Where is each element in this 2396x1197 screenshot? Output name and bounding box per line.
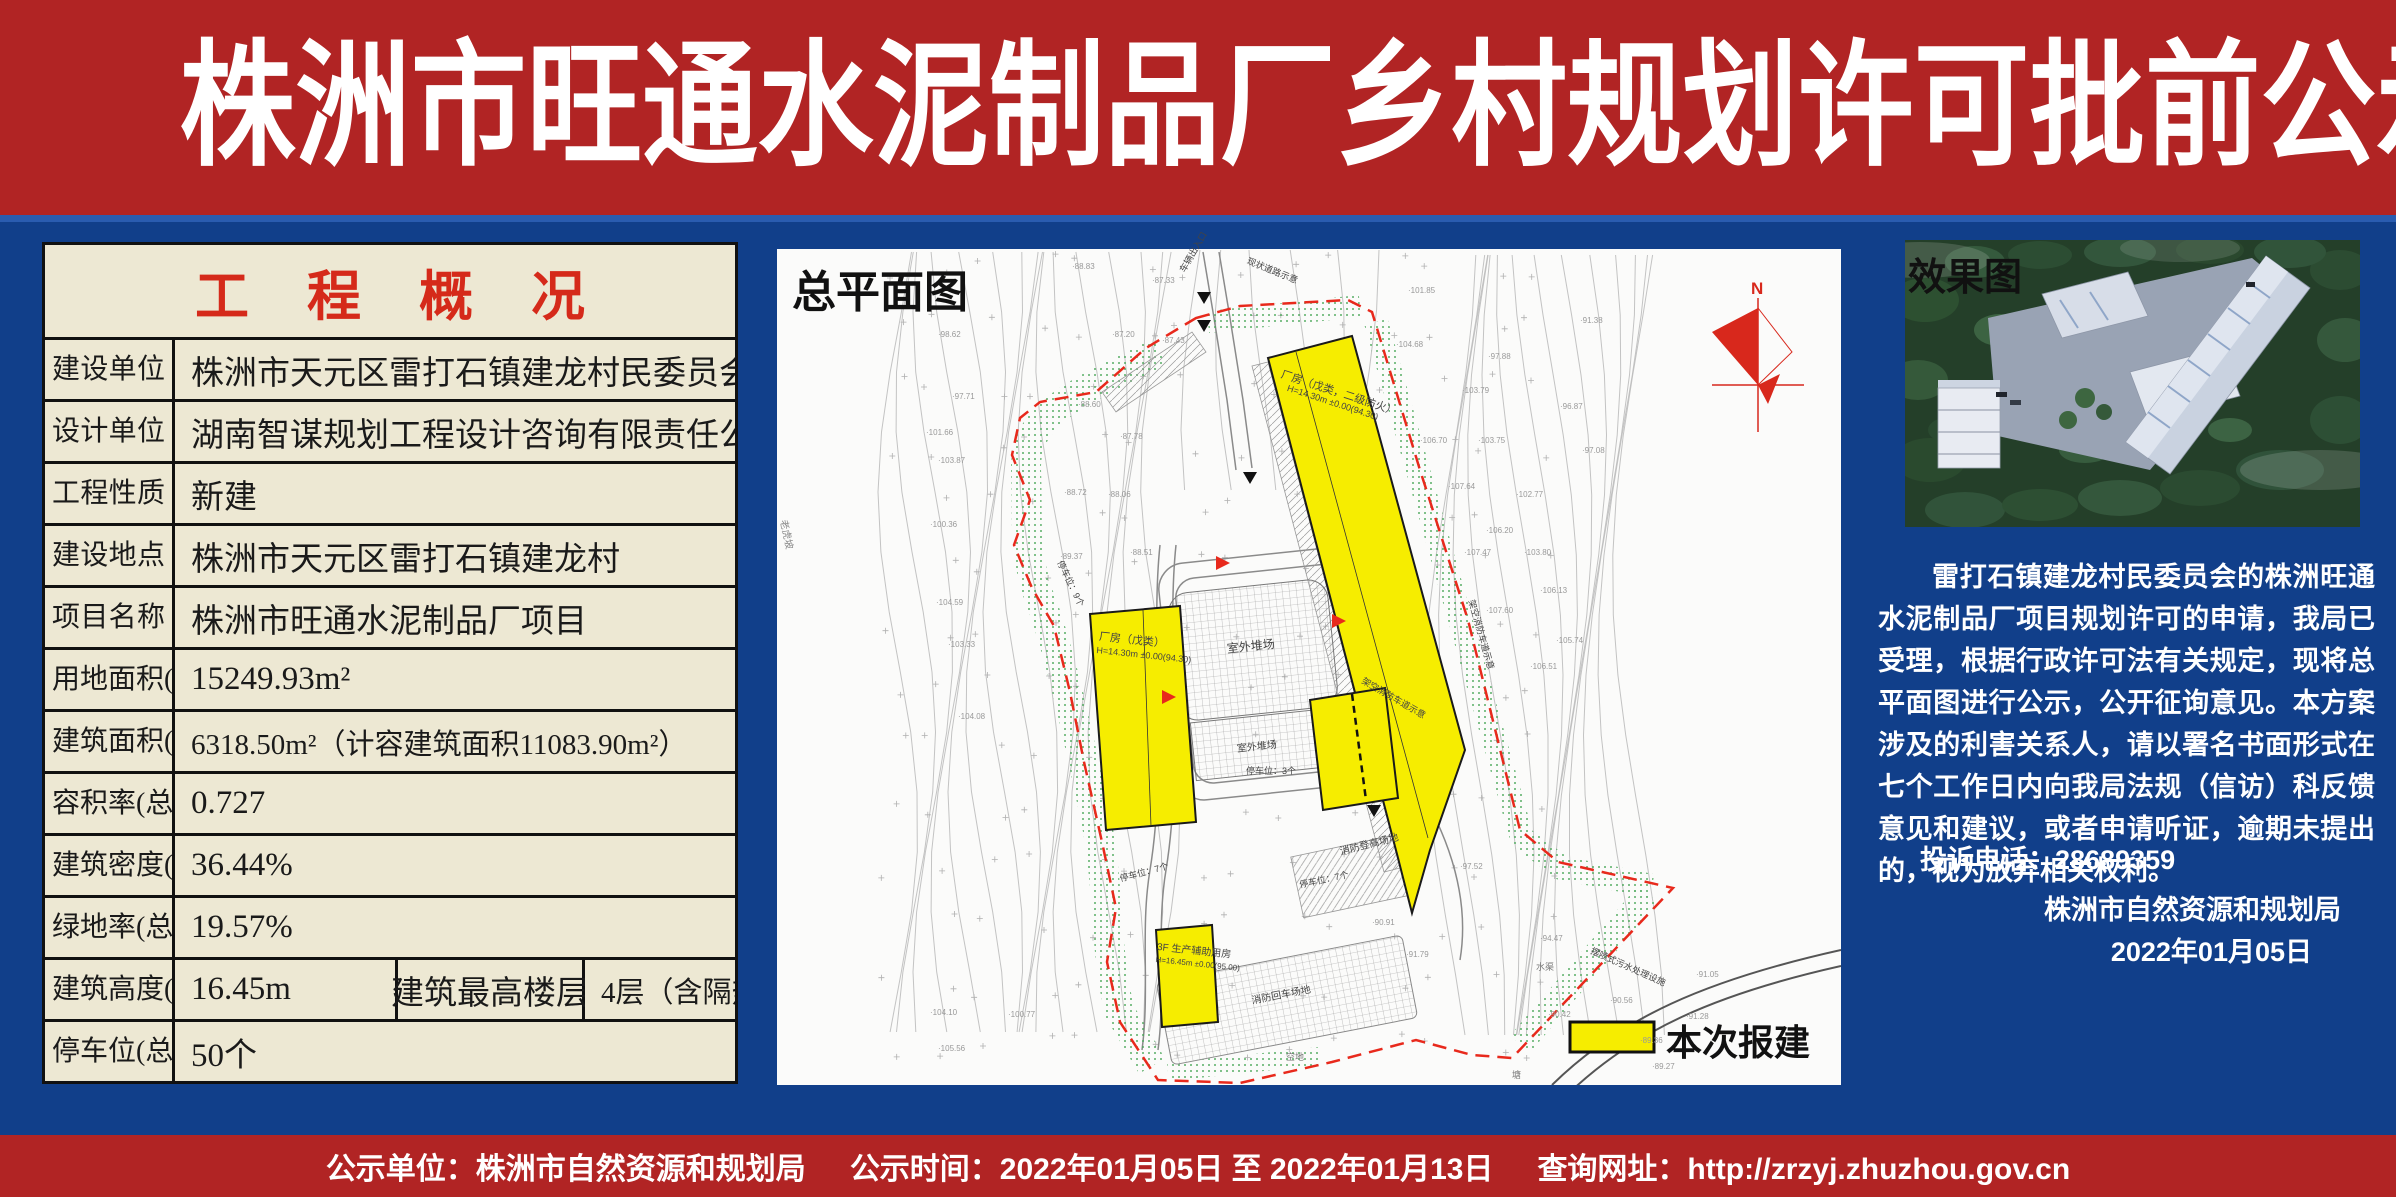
- header-banner: 株洲市旺通水泥制品厂乡村规划许可批前公示: [0, 0, 2396, 215]
- table-row: 停车位(总) 50个: [45, 1022, 735, 1081]
- center-building: [2130, 348, 2240, 420]
- footer-unit: 公示单位：株洲市自然资源和规划局: [326, 1144, 806, 1188]
- row-label: 建设地点: [45, 526, 172, 585]
- row-value: 新建: [175, 464, 735, 523]
- row-label: 建设单位: [45, 340, 172, 399]
- page-title: 株洲市旺通水泥制品厂乡村规划许可批前公示: [180, 0, 2217, 212]
- row-value: 19.57%: [175, 898, 735, 957]
- row-label: 建筑高度(总): [45, 960, 172, 1019]
- site-plan-panel: [777, 249, 1841, 1085]
- table-row: 建筑密度(总) 36.44%: [45, 836, 735, 895]
- table-row: 建设单位 株洲市天元区雷打石镇建龙村民委员会: [45, 340, 735, 399]
- project-overview-table: 工程概况 建设单位 株洲市天元区雷打石镇建龙村民委员会 设计单位 湖南智谋规划工…: [42, 242, 738, 1084]
- skylights: [2060, 282, 2270, 428]
- row-label: 用地面积(总): [45, 650, 172, 709]
- row-value: 株洲市天元区雷打石镇建龙村: [175, 526, 735, 585]
- table-row: 用地面积(总) 15249.93m²: [45, 650, 735, 709]
- table-row: 绿地率(总) 19.57%: [45, 898, 735, 957]
- table-row: 设计单位 湖南智谋规划工程设计咨询有限责任公司: [45, 402, 735, 461]
- table-row: 项目名称 株洲市旺通水泥制品厂项目: [45, 588, 735, 647]
- notice-date: 2022年01月05日: [1878, 930, 2312, 969]
- footer-banner: 公示单位：株洲市自然资源和规划局 公示时间：2022年01月05日 至 2022…: [0, 1135, 2396, 1197]
- row-value: 株洲市天元区雷打石镇建龙村民委员会: [175, 340, 735, 399]
- office-building: [1938, 388, 2000, 468]
- office-roof: [1938, 380, 2000, 394]
- table-row: 建设地点 株洲市天元区雷打石镇建龙村: [45, 526, 735, 585]
- concrete-pad: [1988, 258, 2298, 470]
- complaint-phone: 投诉电话：28689359: [1920, 838, 2375, 877]
- row-value: 株洲市旺通水泥制品厂项目: [175, 588, 735, 647]
- row-label: 工程性质: [45, 464, 172, 523]
- table-row: 工程性质 新建: [45, 464, 735, 523]
- row-label: 项目名称: [45, 588, 172, 647]
- row-value: 0.727: [175, 774, 735, 833]
- table-row: 容积率(总) 0.727: [45, 774, 735, 833]
- agency-name: 株洲市自然资源和规划局: [1878, 888, 2341, 927]
- row-value: 6318.50m²（计容建筑面积11083.90m²）: [175, 712, 735, 771]
- row-label: 绿地率(总): [45, 898, 172, 957]
- render-title: 效果图: [1908, 246, 2022, 301]
- long-building: [2126, 256, 2310, 474]
- row-label: 建筑面积(总): [45, 712, 172, 771]
- legend-label: 本次报建: [1666, 1014, 1810, 1066]
- row-label: 建筑密度(总): [45, 836, 172, 895]
- row-value: 16.45m: [175, 960, 395, 1019]
- table-row: 建筑面积(总) 6318.50m²（计容建筑面积11083.90m²）: [45, 712, 735, 771]
- row-label: 停车位(总): [45, 1022, 172, 1081]
- header-underline: [0, 215, 2396, 222]
- footer-url[interactable]: 查询网址：http://zrzyj.zhuzhou.gov.cn: [1537, 1144, 2070, 1188]
- row-value: 15249.93m²: [175, 650, 735, 709]
- row-value: 36.44%: [175, 836, 735, 895]
- row-label: 设计单位: [45, 402, 172, 461]
- plan-title: 总平面图: [792, 256, 968, 320]
- row-subvalue: 4层（含隔热层）: [585, 960, 735, 1019]
- overview-title: 工程概况: [45, 245, 735, 337]
- mid-building: [2042, 272, 2148, 338]
- footer-time: 公示时间：2022年01月05日 至 2022年01月13日: [850, 1144, 1494, 1188]
- table-row-building-height: 建筑高度(总) 16.45m 建筑最高楼层 4层（含隔热层）: [45, 960, 735, 1019]
- row-sublabel: 建筑最高楼层: [398, 960, 582, 1019]
- row-value: 湖南智谋规划工程设计咨询有限责任公司: [175, 402, 735, 461]
- row-value: 50个: [175, 1022, 735, 1081]
- row-label: 容积率(总): [45, 774, 172, 833]
